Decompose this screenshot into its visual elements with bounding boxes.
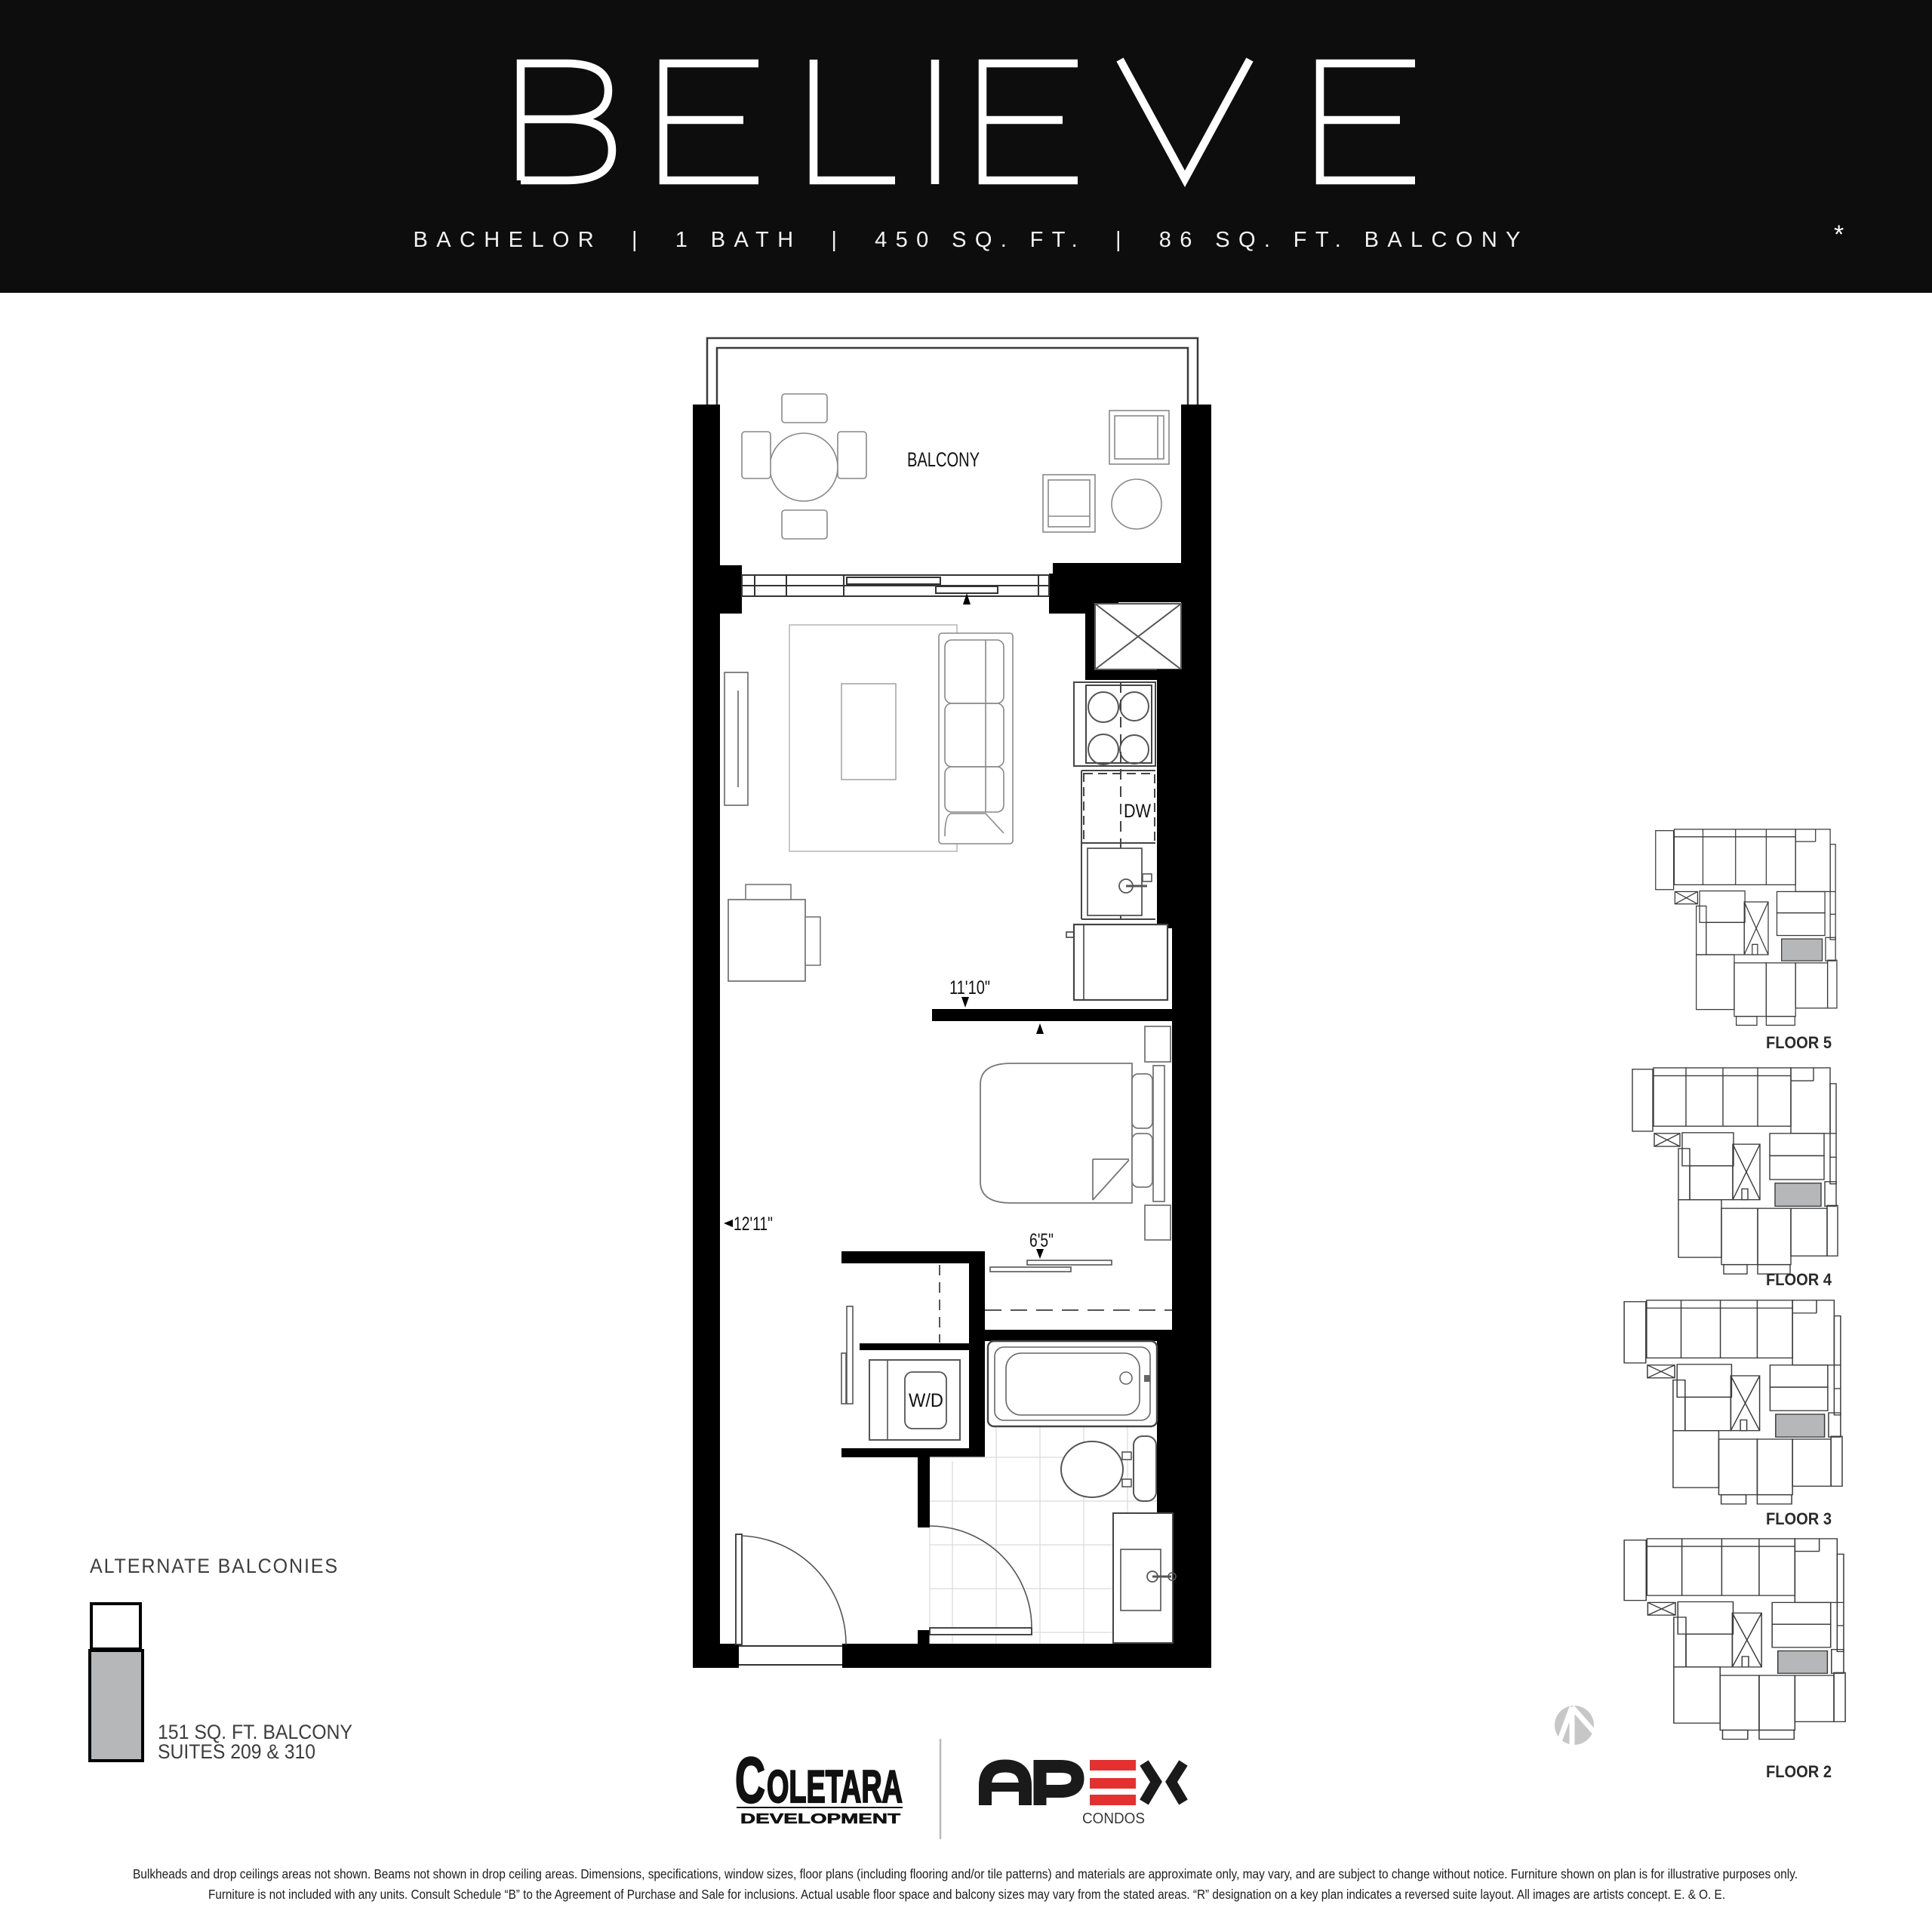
svg-text:*: * [1834,220,1844,249]
svg-text:DEVELOPMENT: DEVELOPMENT [740,1811,900,1826]
svg-text:BALCONY: BALCONY [907,448,980,471]
svg-text:6'5": 6'5" [1029,1230,1054,1251]
svg-text:CONDOS: CONDOS [1082,1810,1145,1827]
svg-text:12'11": 12'11" [734,1214,773,1235]
svg-text:SUITES 209 & 310: SUITES 209 & 310 [158,1740,315,1763]
svg-text:W/D: W/D [909,1390,943,1411]
svg-text:FLOOR 4: FLOOR 4 [1766,1270,1832,1289]
svg-text:DW: DW [1124,801,1151,822]
svg-text:ALTERNATE BALCONIES: ALTERNATE BALCONIES [90,1555,339,1577]
svg-text:FLOOR 3: FLOOR 3 [1766,1509,1832,1528]
svg-text:OLETARA: OLETARA [767,1761,903,1812]
svg-text:11'10": 11'10" [949,977,990,998]
svg-text:Bulkheads and drop ceilings ar: Bulkheads and drop ceilings areas not sh… [133,1866,1798,1881]
svg-text:FLOOR 2: FLOOR 2 [1766,1762,1832,1781]
svg-text:Furniture is not included with: Furniture is not included with any units… [208,1887,1725,1902]
svg-text:C: C [735,1745,765,1817]
svg-text:FLOOR 5: FLOOR 5 [1766,1033,1832,1052]
